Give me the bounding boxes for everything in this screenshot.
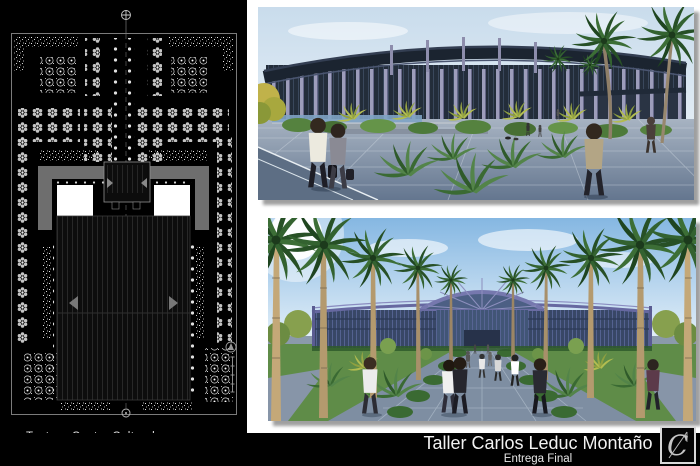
- site-plan-drawing: [0, 0, 247, 466]
- title-bar: Taller Carlos Leduc Montaño Entrega Fina…: [0, 433, 700, 466]
- theater-building: [38, 162, 209, 400]
- studio-title: Taller Carlos Leduc Montaño: [398, 434, 678, 453]
- auditorium-roof: [57, 216, 190, 400]
- entrance-doors: [464, 330, 500, 348]
- rendering-bottom: [268, 218, 696, 421]
- building-volume-left: [57, 185, 93, 216]
- logo-monogram-icon: C: [662, 428, 694, 462]
- building-volume-right: [154, 185, 190, 216]
- rendering-top: [258, 7, 694, 200]
- studio-logo: C: [660, 426, 696, 464]
- site-plan-panel: Teatro - Centro Cultural José Rafael dos…: [0, 0, 247, 466]
- title-block: Taller Carlos Leduc Montaño Entrega Fina…: [398, 434, 678, 465]
- rendering-bottom-image: [268, 218, 696, 421]
- rendering-top-image: [258, 7, 694, 200]
- stage-block: [104, 162, 150, 209]
- presentation-board: Teatro - Centro Cultural José Rafael dos…: [0, 0, 700, 466]
- phase-subtitle: Entrega Final: [398, 453, 678, 465]
